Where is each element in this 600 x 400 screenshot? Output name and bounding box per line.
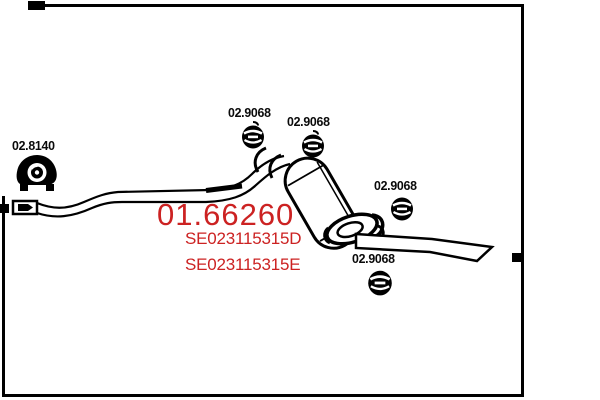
part-label-clamp-3: 02.9068: [374, 179, 417, 192]
mts-part-code: 01.66260: [157, 199, 294, 230]
pipe-clamp-icon: [389, 194, 415, 222]
exhaust-system-diagram: [0, 0, 600, 400]
oem-code-1: SE023115315D: [185, 230, 301, 248]
bend-clamp-hooks: [255, 148, 281, 178]
oem-code-2: SE023115315E: [185, 256, 300, 274]
part-label-clamp-4: 02.9068: [352, 252, 395, 265]
part-label-clamp-2: 02.9068: [287, 115, 330, 128]
part-label-rubber-hanger: 02.8140: [12, 139, 55, 152]
pipe-clamp-icon: [300, 130, 326, 158]
catalog-diagram-page: 02.8140 02.9068 02.9068 02.9068 02.9068 …: [0, 0, 600, 400]
part-label-clamp-1: 02.9068: [228, 106, 271, 119]
rubber-hanger-icon: [15, 153, 59, 193]
pipe-clamp-icon: [240, 121, 266, 149]
pipe-clamp-icon: [366, 267, 394, 297]
inlet-flange: [0, 201, 37, 214]
